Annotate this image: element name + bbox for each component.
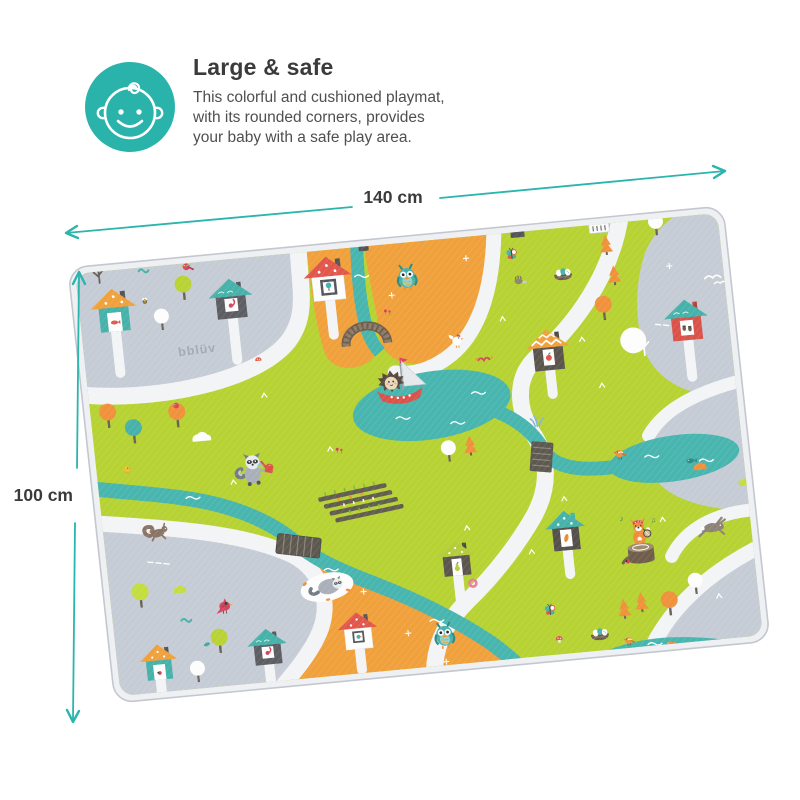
playmat: ♪ ♫ [59, 198, 777, 713]
width-dimension-label: 140 cm [363, 187, 422, 207]
mat-print: ♪ ♫ [59, 198, 777, 713]
product-infographic: Large & safe This colorful and cushioned… [0, 0, 800, 800]
playmat-scene: ♪ ♫ [0, 0, 800, 800]
height-dimension-label: 100 cm [14, 485, 73, 505]
